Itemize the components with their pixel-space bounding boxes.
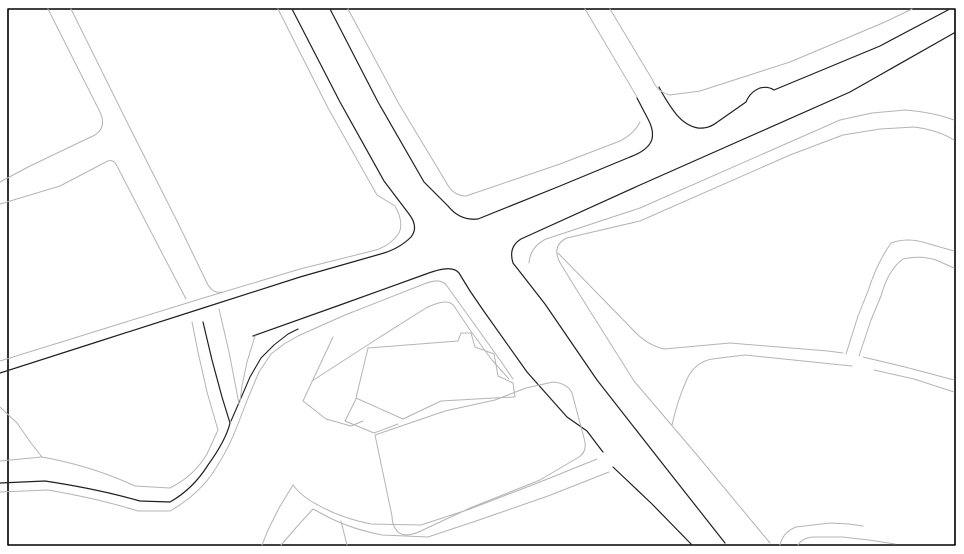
- main-road-east-sidewalk-and-block-corner: [348, 9, 640, 196]
- map-screenshot: [0, 0, 964, 554]
- sw-wavy-road-casing-and-v1-south-edge: [0, 322, 230, 502]
- bottom-right-curve-lower: [798, 537, 895, 545]
- east-branch-road-upper-edge-east: [863, 357, 954, 380]
- nw-street-east-edge: [71, 9, 222, 292]
- wavy-road-south-gray-and-chevron-a: [0, 281, 513, 511]
- parcel-lower-left-quad: [345, 399, 398, 433]
- parcel-notched-polygon: [356, 333, 515, 419]
- se-road-west-casing-below-junction: [613, 467, 692, 545]
- h1-lower-edge-and-nw-street-west-mid: [0, 161, 186, 299]
- nne-connector-east-edge: [859, 257, 954, 356]
- map-frame-border: [8, 9, 955, 545]
- wsw-road-lower-casing-and-se-road-west-casing: [253, 269, 603, 452]
- fork-branch-east-casing: [231, 329, 298, 421]
- east-branch-road-lower-edge-east: [874, 370, 954, 392]
- east-branch-road-upper-edge-west: [558, 253, 843, 353]
- fork-branch-west-gray-edge: [240, 336, 255, 402]
- big-block-rounded: [375, 382, 585, 535]
- ne-arterial-outer-parallel-and-se-east-sidewalk: [557, 127, 954, 543]
- east-branch-road-lower-edge-west: [672, 355, 852, 425]
- nne-connector-west-edge: [846, 240, 954, 354]
- bottom-road-south-edge: [281, 472, 609, 545]
- main-road-west-sidewalk-and-wsw-upper-parallel: [0, 9, 401, 361]
- main-road-west-casing-and-wsw-road-upper: [0, 9, 415, 373]
- parcel-west-small: [303, 337, 363, 426]
- top-side-street-west-edge: [585, 9, 637, 97]
- v1-south-east-gray-edge: [219, 309, 239, 404]
- ne-arterial-inner-parallel-south: [529, 110, 954, 263]
- bottom-right-curve-upper: [780, 523, 863, 545]
- bottom-road-north-edge: [262, 459, 597, 545]
- wavy-road-north-gray: [0, 322, 218, 488]
- map-canvas: [0, 0, 964, 554]
- sliver-chevron-b: [312, 302, 509, 381]
- wavy-road-north-spur: [0, 407, 42, 457]
- nw-street-west-edge-and-h1-upper: [0, 9, 103, 182]
